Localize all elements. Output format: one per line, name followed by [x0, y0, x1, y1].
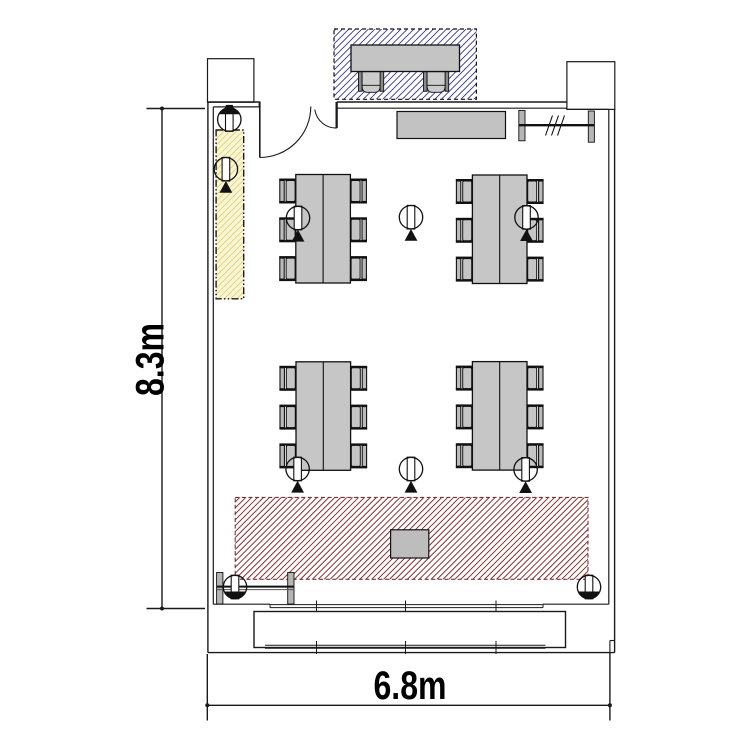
svg-text:8.3m: 8.3m: [129, 323, 173, 396]
svg-text:6.8m: 6.8m: [374, 664, 447, 708]
